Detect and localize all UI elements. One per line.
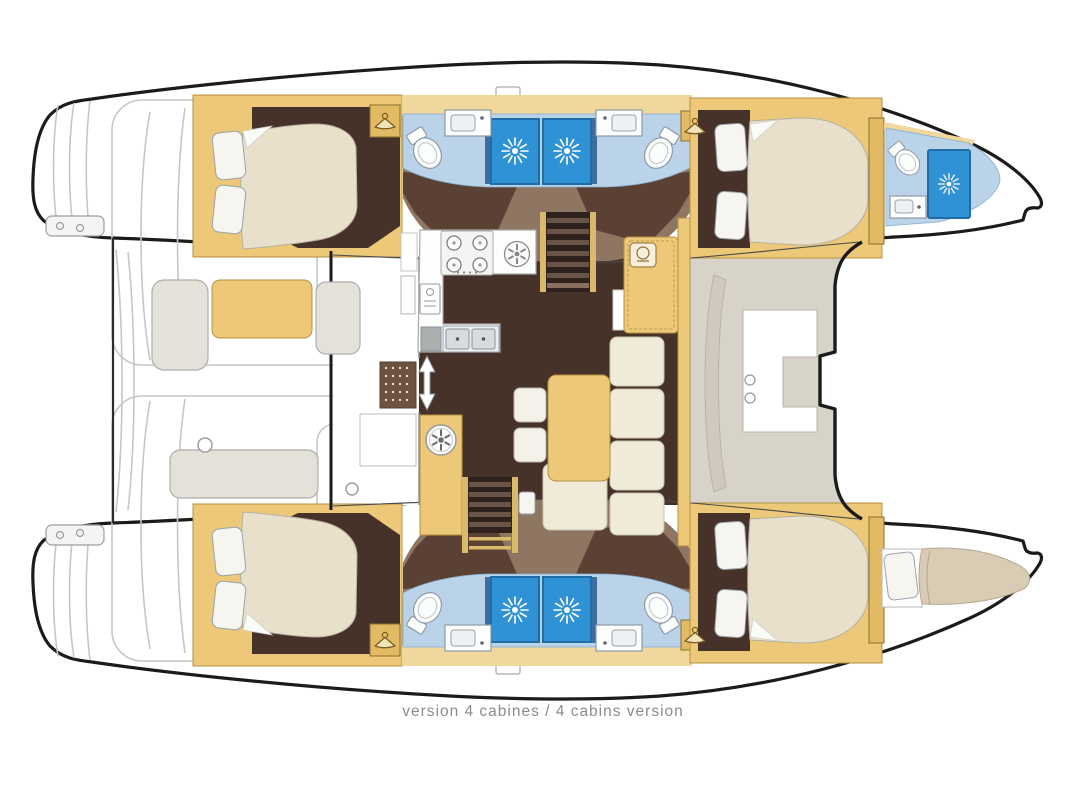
entry-mat (380, 362, 416, 408)
floor-plan-page: version 4 cabines / 4 cabins version (0, 0, 1067, 800)
sink-icon (890, 196, 926, 218)
cockpit-bench (152, 280, 208, 370)
galley-cabinet (420, 415, 462, 535)
oven-icon (420, 284, 440, 314)
stool (514, 428, 546, 462)
forward-bulkhead (678, 218, 690, 546)
stool (514, 388, 546, 422)
starboard-hull-interior (193, 500, 884, 666)
saloon-table (548, 375, 610, 481)
cockpit-table (212, 280, 312, 338)
pillow (883, 551, 918, 600)
round-burner-icon (505, 242, 530, 267)
vent-wheel-icon (426, 425, 456, 455)
caption: version 4 cabines / 4 cabins version (402, 703, 684, 720)
cockpit-locker (360, 414, 416, 466)
cockpit-bench (316, 282, 360, 354)
cockpit-bench (170, 450, 318, 498)
stove-burners-icon (441, 231, 493, 275)
galley-sink-icon (421, 326, 499, 352)
port-hull-interior (193, 95, 884, 261)
floor-plan-canvas: version 4 cabines / 4 cabins version (0, 0, 1067, 800)
nav-cabinet (624, 237, 678, 333)
stairs-port (540, 212, 596, 292)
